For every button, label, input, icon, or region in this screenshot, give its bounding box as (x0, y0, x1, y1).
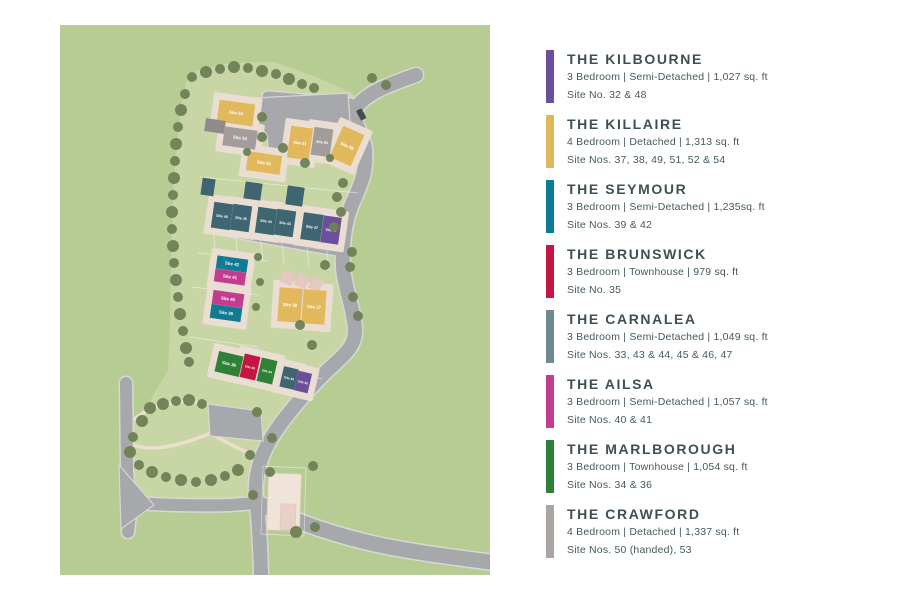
house-type-sites: Site Nos. 33, 43 & 44, 45 & 46, 47 (567, 348, 768, 363)
legend-color-bar (546, 440, 554, 493)
tree-icon (367, 73, 377, 83)
house-type-name: THE AILSA (567, 375, 768, 393)
house-type-sites: Site Nos. 40 & 41 (567, 413, 768, 428)
map-outbuilding (285, 185, 304, 206)
house-type-name: THE CRAWFORD (567, 505, 739, 523)
tree-icon (248, 490, 258, 500)
tree-icon (167, 240, 179, 252)
tree-icon (173, 122, 183, 132)
tree-icon (184, 357, 194, 367)
house-type-sites: Site Nos. 34 & 36 (567, 478, 748, 493)
tree-icon (168, 172, 180, 184)
house-type-name: THE MARLBOROUGH (567, 440, 748, 458)
house-type-name: THE KILLAIRE (567, 115, 739, 133)
tree-icon (136, 415, 148, 427)
house-type-sites: Site Nos. 37, 38, 49, 51, 52 & 54 (567, 153, 739, 168)
tree-icon (381, 80, 391, 90)
site-plan-page: Site 54Site 53Site 52Site 51Site 50Site … (0, 0, 900, 599)
tree-icon (243, 63, 253, 73)
tree-icon (295, 320, 305, 330)
legend-color-bar (546, 50, 554, 103)
tree-icon (170, 274, 182, 286)
tree-icon (171, 396, 181, 406)
legend: THE KILBOURNE 3 Bedroom | Semi-Detached … (546, 50, 892, 558)
house-type-name: THE KILBOURNE (567, 50, 768, 68)
legend-entry-carnalea: THE CARNALEA 3 Bedroom | Semi-Detached |… (546, 310, 892, 363)
tree-icon (197, 399, 207, 409)
tree-icon (174, 308, 186, 320)
tree-icon (252, 407, 262, 417)
tree-icon (300, 158, 310, 168)
tree-icon (167, 224, 177, 234)
tree-icon (245, 450, 255, 460)
legend-color-bar (546, 180, 554, 233)
tree-icon (336, 207, 346, 217)
house-type-name: THE SEYMOUR (567, 180, 765, 198)
house-type-sites: Site Nos. 50 (handed), 53 (567, 543, 739, 558)
tree-icon (332, 192, 342, 202)
house-type-specs: 3 Bedroom | Townhouse | 979 sq. ft (567, 265, 738, 280)
tree-icon (180, 89, 190, 99)
legend-color-bar (546, 505, 554, 558)
house-type-specs: 3 Bedroom | Semi-Detached | 1,057 sq. ft (567, 395, 768, 410)
tree-icon (215, 64, 225, 74)
house-type-specs: 4 Bedroom | Detached | 1,313 sq. ft (567, 135, 739, 150)
house-type-sites: Site No. 32 & 48 (567, 88, 768, 103)
tree-icon (183, 394, 195, 406)
map-house-label: Site 37 (307, 304, 322, 310)
legend-entry-crawford: THE CRAWFORD 4 Bedroom | Detached | 1,33… (546, 505, 892, 558)
tree-icon (173, 292, 183, 302)
house-type-specs: 3 Bedroom | Semi-Detached | 1,049 sq. ft (567, 330, 768, 345)
tree-icon (326, 154, 334, 162)
house-type-specs: 4 Bedroom | Detached | 1,337 sq. ft (567, 525, 739, 540)
tree-icon (178, 326, 188, 336)
tree-icon (124, 446, 136, 458)
house-type-name: THE BRUNSWICK (567, 245, 738, 263)
legend-entry-seymour: THE SEYMOUR 3 Bedroom | Semi-Detached | … (546, 180, 892, 233)
tree-icon (232, 464, 244, 476)
map-panel: Site 54Site 53Site 52Site 51Site 50Site … (60, 25, 490, 575)
legend-entry-marlborough: THE MARLBOROUGH 3 Bedroom | Townhouse | … (546, 440, 892, 493)
tree-icon (257, 132, 267, 142)
legend-entry-killaire: THE KILLAIRE 4 Bedroom | Detached | 1,31… (546, 115, 892, 168)
tree-icon (256, 278, 264, 286)
site-plan-map: Site 54Site 53Site 52Site 51Site 50Site … (60, 25, 490, 575)
map-house-label: Site 38 (283, 302, 298, 308)
tree-icon (252, 303, 260, 311)
tree-icon (348, 292, 358, 302)
tree-icon (265, 467, 275, 477)
legend-color-bar (546, 310, 554, 363)
tree-icon (329, 222, 339, 232)
tree-icon (161, 472, 171, 482)
tree-icon (146, 466, 158, 478)
map-outbuilding (243, 181, 262, 200)
tree-icon (290, 526, 302, 538)
legend-color-bar (546, 115, 554, 168)
tree-icon (166, 206, 178, 218)
tree-icon (310, 522, 320, 532)
tree-icon (307, 340, 317, 350)
map-outbuilding (200, 178, 215, 197)
tree-icon (191, 477, 201, 487)
legend-color-bar (546, 375, 554, 428)
tree-icon (257, 112, 267, 122)
legend-entry-kilbourne: THE KILBOURNE 3 Bedroom | Semi-Detached … (546, 50, 892, 103)
legend-color-bar (546, 245, 554, 298)
house-type-sites: Site Nos. 39 & 42 (567, 218, 765, 233)
tree-icon (128, 432, 138, 442)
tree-icon (297, 79, 307, 89)
tree-icon (256, 65, 268, 77)
house-type-sites: Site No. 35 (567, 283, 738, 298)
tree-icon (180, 342, 192, 354)
tree-icon (338, 178, 348, 188)
tree-icon (144, 402, 156, 414)
tree-icon (353, 311, 363, 321)
house-type-name: THE CARNALEA (567, 310, 768, 328)
tree-icon (320, 260, 330, 270)
tree-icon (271, 69, 281, 79)
tree-icon (254, 253, 262, 261)
tree-icon (220, 471, 230, 481)
house-type-specs: 3 Bedroom | Semi-Detached | 1,235sq. ft (567, 200, 765, 215)
tree-icon (309, 83, 319, 93)
tree-icon (134, 460, 144, 470)
tree-icon (168, 190, 178, 200)
tree-icon (347, 247, 357, 257)
tree-icon (175, 474, 187, 486)
tree-icon (187, 72, 197, 82)
tree-icon (175, 104, 187, 116)
tree-icon (170, 138, 182, 150)
tree-icon (243, 148, 251, 156)
tree-icon (157, 398, 169, 410)
map-outbuilding (204, 118, 226, 134)
legend-entry-ailsa: THE AILSA 3 Bedroom | Semi-Detached | 1,… (546, 375, 892, 428)
map-outbuilding (280, 504, 296, 531)
tree-icon (228, 61, 240, 73)
tree-icon (170, 156, 180, 166)
house-type-specs: 3 Bedroom | Semi-Detached | 1,027 sq. ft (567, 70, 768, 85)
tree-icon (200, 66, 212, 78)
tree-icon (345, 262, 355, 272)
tree-icon (267, 433, 277, 443)
house-type-specs: 3 Bedroom | Townhouse | 1,054 sq. ft (567, 460, 748, 475)
tree-icon (169, 258, 179, 268)
tree-icon (205, 474, 217, 486)
tree-icon (283, 73, 295, 85)
tree-icon (308, 461, 318, 471)
tree-icon (278, 143, 288, 153)
legend-entry-brunswick: THE BRUNSWICK 3 Bedroom | Townhouse | 97… (546, 245, 892, 298)
